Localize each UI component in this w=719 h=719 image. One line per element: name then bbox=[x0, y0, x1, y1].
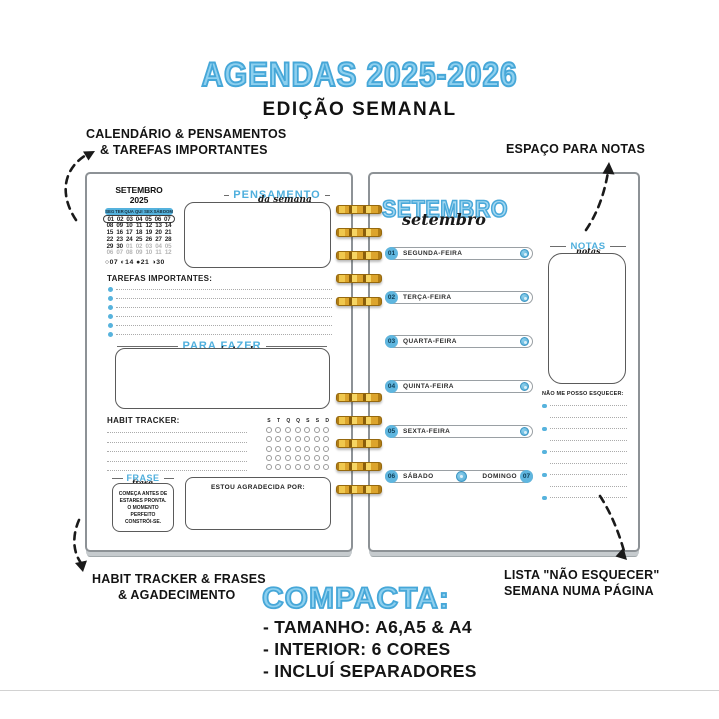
habit-checkbox bbox=[266, 446, 272, 452]
day-row-05: 05SEXTA-FEIRA bbox=[385, 425, 533, 438]
day-row-02: 02TERÇA-FEIRA bbox=[385, 291, 533, 304]
habit-checkbox bbox=[285, 427, 291, 433]
write-line bbox=[550, 497, 628, 498]
day-name-label: SEGUNDA-FEIRA bbox=[403, 250, 462, 257]
pensamento-box bbox=[184, 202, 331, 268]
bullet-dot bbox=[542, 473, 547, 478]
ruled-line bbox=[108, 303, 332, 312]
annotation-top-left: CALENDÁRIO & PENSAMENTOS & TAREFAS IMPOR… bbox=[86, 126, 286, 158]
habit-column-label: S bbox=[313, 418, 323, 424]
bullet-dot bbox=[542, 404, 547, 409]
habit-checkbox bbox=[323, 427, 329, 433]
bullet-dot bbox=[542, 427, 547, 432]
frase-title: FRASE bbox=[127, 473, 160, 483]
habit-checkbox bbox=[314, 464, 320, 470]
write-line bbox=[107, 470, 247, 471]
day-sticker-icon bbox=[520, 293, 529, 302]
day-number-badge: 05 bbox=[385, 425, 398, 438]
write-line bbox=[116, 289, 332, 290]
annotation-line: ESPAÇO PARA NOTAS bbox=[506, 141, 645, 157]
weekend-row: 06 SÁBADO DOMINGO 07 bbox=[385, 470, 533, 483]
notas-title: NOTAS bbox=[570, 241, 605, 252]
calendar-weekday: DOM bbox=[163, 209, 173, 214]
habit-checkbox bbox=[295, 436, 301, 442]
habit-tracker-label: HABIT TRACKER: bbox=[107, 416, 180, 425]
habit-grid-row bbox=[264, 446, 332, 452]
bullet-dot bbox=[108, 314, 113, 319]
compacta-item: - INTERIOR: 6 CORES bbox=[263, 639, 477, 661]
compacta-item: - INCLUÍ SEPARADORES bbox=[263, 661, 477, 683]
left-page: SETEMBRO 2025 SEGTERQUAQUISEXSÁBDOM 0102… bbox=[85, 172, 353, 552]
annotation-line: LISTA "NÃO ESQUECER" bbox=[504, 567, 659, 583]
day-name-label: QUARTA-FEIRA bbox=[403, 338, 457, 345]
pensamento-title: PENSAMENTO bbox=[233, 189, 320, 201]
habit-checkbox bbox=[266, 427, 272, 433]
weather-sticker-icon bbox=[456, 471, 467, 482]
day-sticker-icon bbox=[520, 382, 529, 391]
habit-checkbox bbox=[275, 446, 281, 452]
write-line bbox=[116, 316, 332, 317]
tarefas-lines bbox=[108, 285, 332, 339]
day-name-label: SEXTA-FEIRA bbox=[403, 428, 450, 435]
habit-column-label: T bbox=[274, 418, 284, 424]
habit-checkbox bbox=[295, 427, 301, 433]
write-line bbox=[550, 451, 628, 452]
calendar-weekday: SEX bbox=[144, 209, 154, 214]
habit-checkbox bbox=[304, 464, 310, 470]
product-image: AGENDAS 2025-2026 EDIÇÃO SEMANAL CALENDÁ… bbox=[0, 0, 719, 719]
habit-checkbox bbox=[314, 436, 320, 442]
habit-checkbox bbox=[304, 427, 310, 433]
tarefas-label: TAREFAS IMPORTANTES: bbox=[107, 274, 212, 283]
month-title: SETEMBRO bbox=[382, 196, 508, 224]
divider-line bbox=[325, 195, 330, 196]
day-row-04: 04QUINTA-FEIRA bbox=[385, 380, 533, 393]
annotation-line: HABIT TRACKER & FRASES bbox=[92, 571, 266, 587]
write-line bbox=[550, 405, 628, 406]
habit-checkbox bbox=[275, 464, 281, 470]
annotation-bottom-left: HABIT TRACKER & FRASES & AGADECIMENTO bbox=[92, 571, 266, 603]
notas-box bbox=[548, 253, 626, 384]
day-number-badge: 07 bbox=[520, 470, 533, 483]
image-bottom-border bbox=[0, 690, 719, 691]
habit-checkbox bbox=[285, 464, 291, 470]
habit-checkbox bbox=[295, 464, 301, 470]
dashed-arrow-bottom-left bbox=[74, 520, 81, 563]
ruled-line bbox=[542, 469, 627, 481]
annotation-line: & AGADECIMENTO bbox=[92, 587, 266, 603]
write-line bbox=[107, 432, 247, 433]
page-subtitle: EDIÇÃO SEMANAL bbox=[0, 99, 719, 121]
dashed-arrow-top-left bbox=[66, 155, 86, 220]
ruled-line bbox=[108, 330, 332, 339]
habit-checkbox bbox=[314, 455, 320, 461]
day-sticker-icon bbox=[520, 249, 529, 258]
habit-checkbox bbox=[295, 455, 301, 461]
day-name-label: TERÇA-FEIRA bbox=[403, 294, 451, 301]
bullet-dot bbox=[108, 332, 113, 337]
habit-grid: STQQSSD bbox=[264, 418, 332, 470]
habit-checkbox bbox=[323, 455, 329, 461]
calendar-moon-phases: ○07 ◐14 ●21 ◑30 bbox=[105, 259, 173, 266]
calendar-week-row: 06070809101112 bbox=[105, 250, 173, 257]
bullet-dot bbox=[108, 305, 113, 310]
habit-checkbox bbox=[285, 455, 291, 461]
day-number-badge: 04 bbox=[385, 380, 398, 393]
habit-checkbox bbox=[323, 436, 329, 442]
ruled-line bbox=[108, 312, 332, 321]
calendar-day: 06 bbox=[105, 249, 115, 256]
day-sticker-icon bbox=[520, 337, 529, 346]
habit-checkbox bbox=[304, 446, 310, 452]
habit-checkbox bbox=[314, 427, 320, 433]
habit-checkbox bbox=[304, 436, 310, 442]
bullet-dot bbox=[108, 296, 113, 301]
calendar-weekday: QUA bbox=[124, 209, 134, 214]
ruled-line bbox=[542, 458, 627, 470]
calendar-weekday-row: SEGTERQUAQUISEXSÁBDOM bbox=[105, 208, 173, 215]
compacta-item: - TAMANHO: A6,A5 & A4 bbox=[263, 617, 477, 639]
ruled-line bbox=[108, 285, 332, 294]
write-line bbox=[107, 461, 247, 462]
esquecer-label: NÃO ME POSSO ESQUECER: bbox=[542, 391, 624, 397]
compacta-items: - TAMANHO: A6,A5 & A4 - INTERIOR: 6 CORE… bbox=[263, 617, 477, 683]
ruled-line bbox=[107, 438, 247, 448]
day-name-label: DOMINGO bbox=[482, 473, 517, 480]
bullet-dot bbox=[542, 450, 547, 455]
habit-grid-row bbox=[264, 427, 332, 433]
habit-grid-row bbox=[264, 464, 332, 470]
habit-checkbox bbox=[323, 446, 329, 452]
page-title: AGENDAS 2025-2026 bbox=[43, 56, 676, 95]
annotation-line: & TAREFAS IMPORTANTES bbox=[86, 142, 286, 158]
habit-checkbox bbox=[266, 455, 272, 461]
habit-column-label: D bbox=[322, 418, 332, 424]
divider-line bbox=[112, 478, 123, 479]
calendar-day: 11 bbox=[154, 249, 164, 256]
bullet-dot bbox=[542, 496, 547, 501]
write-line bbox=[550, 474, 628, 475]
write-line bbox=[116, 325, 332, 326]
habit-checkbox bbox=[323, 464, 329, 470]
divider-line bbox=[164, 478, 175, 479]
annotation-top-right: ESPAÇO PARA NOTAS bbox=[506, 141, 645, 157]
calendar-weeks: 0102030405060708091011121314151617181920… bbox=[105, 215, 173, 256]
esquecer-lines bbox=[542, 400, 627, 504]
bullet-dot bbox=[108, 287, 113, 292]
habit-checkbox bbox=[304, 455, 310, 461]
arrowhead-icon bbox=[75, 561, 87, 573]
calendar-day: 07 bbox=[115, 249, 125, 256]
write-line bbox=[116, 298, 332, 299]
calendar-day: 09 bbox=[134, 249, 144, 256]
frase-header: FRASE frase bbox=[112, 473, 174, 483]
annotation-bottom-right: LISTA "NÃO ESQUECER" SEMANA NUMA PÁGINA bbox=[504, 567, 659, 599]
day-number-badge: 02 bbox=[385, 291, 398, 304]
annotation-line: CALENDÁRIO & PENSAMENTOS bbox=[86, 126, 286, 142]
ruled-line bbox=[542, 400, 627, 412]
ruled-line bbox=[542, 492, 627, 504]
habit-checkbox bbox=[285, 446, 291, 452]
habit-column-label: S bbox=[303, 418, 313, 424]
habit-checkbox bbox=[266, 464, 272, 470]
write-line bbox=[107, 451, 247, 452]
calendar-weekday: SÁB bbox=[153, 209, 163, 214]
day-number-badge: 01 bbox=[385, 247, 398, 260]
write-line bbox=[116, 307, 332, 308]
ruled-line bbox=[107, 447, 247, 457]
divider-line bbox=[610, 246, 626, 247]
habit-checkbox bbox=[295, 446, 301, 452]
habit-grid-row bbox=[264, 436, 332, 442]
habit-column-label: S bbox=[264, 418, 274, 424]
ruled-line bbox=[108, 321, 332, 330]
habit-grid-header: STQQSSD bbox=[264, 418, 332, 424]
habit-column-label: Q bbox=[283, 418, 293, 424]
ruled-line bbox=[542, 423, 627, 435]
gratidao-label: ESTOU AGRADECIDA POR: bbox=[186, 478, 330, 491]
mini-calendar: SETEMBRO 2025 SEGTERQUAQUISEXSÁBDOM 0102… bbox=[105, 185, 173, 266]
notas-header: NOTAS notas bbox=[550, 241, 626, 252]
habit-checkbox bbox=[285, 436, 291, 442]
ruled-line bbox=[542, 412, 627, 424]
write-line bbox=[550, 417, 628, 418]
write-line bbox=[116, 334, 332, 335]
ruled-line bbox=[107, 457, 247, 467]
frase-box: COMEÇA ANTES DE ESTARES PRONTA. O MOMENT… bbox=[112, 483, 174, 532]
divider-line bbox=[117, 346, 178, 347]
day-row-01: 01SEGUNDA-FEIRA bbox=[385, 247, 533, 260]
calendar-weekday: SEG bbox=[105, 209, 115, 214]
bullet-dot bbox=[108, 323, 113, 328]
habit-checkbox bbox=[275, 436, 281, 442]
divider-line bbox=[266, 346, 327, 347]
right-page: SETEMBRO setembro 06 SÁBADO DOMINGO 07 N… bbox=[368, 172, 640, 552]
pensamento-header: PENSAMENTO da semana bbox=[224, 189, 330, 201]
calendar-weekday: QUI bbox=[134, 209, 144, 214]
day-number-badge: 03 bbox=[385, 335, 398, 348]
write-line bbox=[550, 428, 628, 429]
habit-lines bbox=[107, 428, 247, 476]
divider-line bbox=[550, 246, 566, 247]
calendar-day: 10 bbox=[144, 249, 154, 256]
day-number-badge: 06 bbox=[385, 470, 398, 483]
habit-checkbox bbox=[275, 455, 281, 461]
write-line bbox=[107, 442, 247, 443]
day-row-03: 03QUARTA-FEIRA bbox=[385, 335, 533, 348]
calendar-title: SETEMBRO 2025 bbox=[105, 185, 173, 205]
write-line bbox=[550, 486, 628, 487]
habit-checkbox bbox=[275, 427, 281, 433]
divider-line bbox=[224, 195, 229, 196]
day-sticker-icon bbox=[520, 427, 529, 436]
habit-checkbox bbox=[266, 436, 272, 442]
write-line bbox=[550, 463, 628, 464]
calendar-weekday: TER bbox=[115, 209, 125, 214]
habit-column-label: Q bbox=[293, 418, 303, 424]
habit-grid-row bbox=[264, 455, 332, 461]
ruled-line bbox=[542, 481, 627, 493]
write-line bbox=[550, 440, 628, 441]
compacta-title: COMPACTA: bbox=[262, 582, 450, 616]
ruled-line bbox=[542, 446, 627, 458]
ruled-line bbox=[108, 294, 332, 303]
day-name-label: QUINTA-FEIRA bbox=[403, 383, 454, 390]
gratidao-box: ESTOU AGRADECIDA POR: bbox=[185, 477, 331, 530]
annotation-line: SEMANA NUMA PÁGINA bbox=[504, 583, 659, 599]
calendar-day: 12 bbox=[163, 249, 173, 256]
habit-checkbox bbox=[314, 446, 320, 452]
calendar-day: 08 bbox=[124, 249, 134, 256]
ruled-line bbox=[107, 428, 247, 438]
ruled-line bbox=[542, 435, 627, 447]
para-fazer-box bbox=[115, 348, 330, 409]
day-name-label: SÁBADO bbox=[403, 473, 434, 480]
